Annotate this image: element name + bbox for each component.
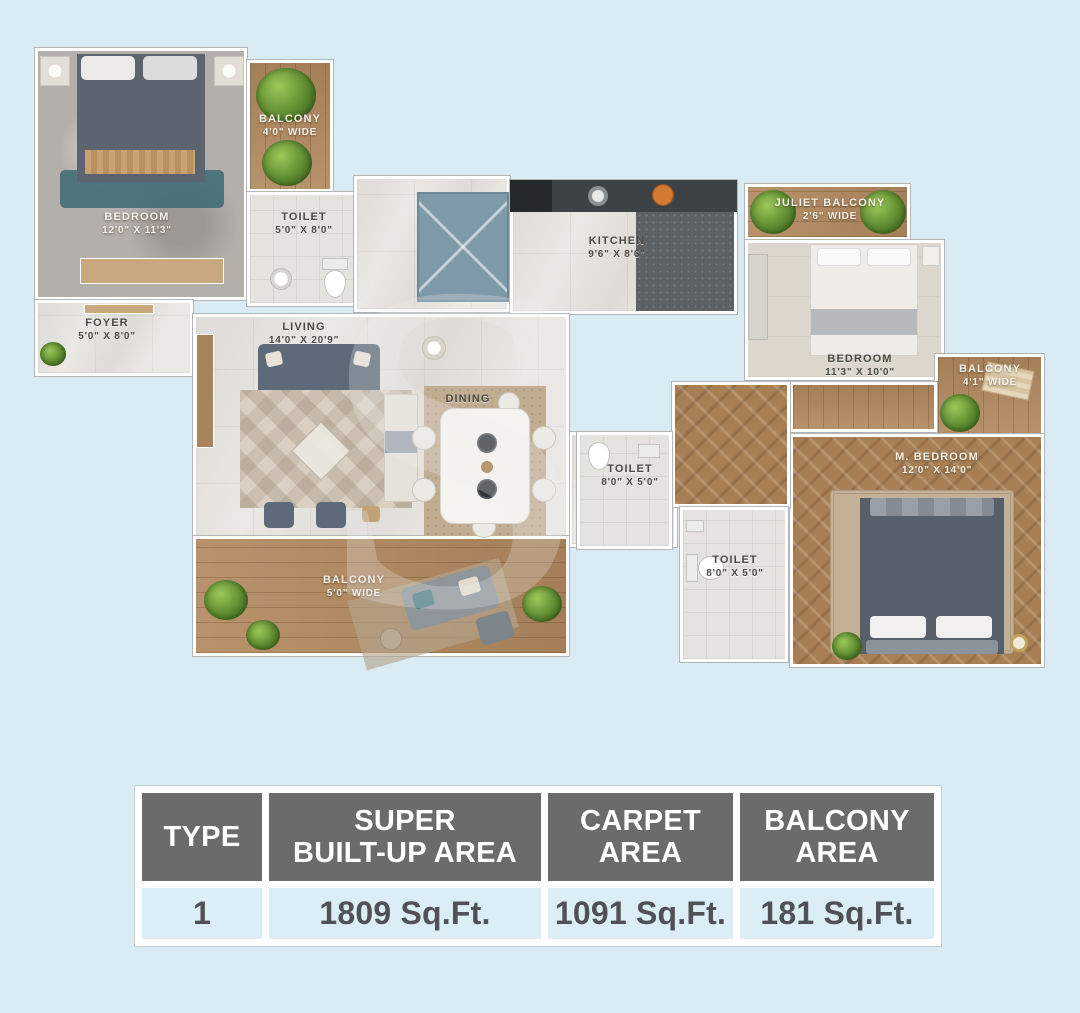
dining-table	[440, 408, 530, 524]
dining-chair	[412, 426, 436, 450]
refrigerator	[510, 180, 552, 212]
room-dims: 5'0" X 8'0"	[78, 331, 136, 344]
room-dims: 9'6" X 8'6"	[588, 249, 646, 262]
plant	[204, 580, 248, 620]
room-label-toilet-1: TOILET 5'0" X 8'0"	[275, 211, 333, 237]
room-dims: 12'0" X 14'0"	[895, 465, 979, 478]
room-name: BALCONY	[259, 113, 321, 127]
room-dims: 4'0" WIDE	[259, 127, 321, 140]
nightstand	[922, 246, 940, 266]
dining-chair	[532, 478, 556, 502]
room-dims: 5'0" WIDE	[323, 588, 385, 601]
plant	[832, 632, 862, 660]
plate	[477, 433, 497, 453]
plant	[40, 342, 66, 366]
table-cell-super-built-up-area: 1809 Sq.Ft.	[269, 888, 541, 939]
table-header-super-built-up-area: SUPER BUILT-UP AREA	[269, 793, 541, 881]
room-label-bedroom-2: BEDROOM 11'3" X 10'0"	[825, 353, 895, 379]
sofa-pillow	[265, 350, 284, 367]
room-label-dining: DINING	[445, 393, 490, 407]
room-name: JULIET BALCONY	[775, 197, 886, 211]
table-cell-balcony-area: 181 Sq.Ft.	[740, 888, 934, 939]
armchair	[316, 502, 346, 528]
sofa	[258, 344, 380, 396]
pillow	[870, 616, 926, 638]
room-label-kitchen: KITCHEN 9'6" X 8'6"	[588, 235, 646, 261]
stool	[362, 506, 380, 522]
floor-plan: BEDROOM 12'0" X 11'3" BALCONY 4'0" WIDE …	[32, 42, 1044, 674]
room-name: M. BEDROOM	[895, 451, 979, 465]
area-table: TYPE SUPER BUILT-UP AREA CARPET AREA BAL…	[135, 786, 941, 946]
room-name: TOILET	[601, 463, 659, 477]
pillow	[936, 616, 992, 638]
wash-basin	[686, 520, 704, 532]
room-label-living: LIVING 14'0" X 20'9"	[269, 321, 339, 347]
room-name: BALCONY	[323, 574, 385, 588]
wardrobe	[80, 258, 224, 284]
room-name: KITCHEN	[588, 235, 646, 249]
room-label-juliet-balcony: JULIET BALCONY 2'6" WIDE	[775, 197, 886, 223]
sofa-pillow	[412, 589, 436, 610]
room-dressing-ledge	[790, 382, 937, 432]
room-name: BALCONY	[959, 363, 1021, 377]
pillow	[817, 248, 861, 266]
nightstand-lamp	[40, 56, 70, 86]
room-passage-wood	[672, 382, 790, 507]
double-bed	[77, 54, 205, 182]
plant	[522, 586, 562, 622]
bed-throw	[811, 309, 917, 335]
room-dims: 4'1" WIDE	[959, 377, 1021, 390]
room-dims: 14'0" X 20'9"	[269, 335, 339, 348]
table-header-type: TYPE	[142, 793, 262, 881]
plate	[477, 479, 497, 499]
table-header-carpet-area: CARPET AREA	[548, 793, 733, 881]
room-name: FOYER	[78, 317, 136, 331]
tv-unit	[196, 334, 214, 448]
plant	[940, 394, 980, 432]
wash-basin	[270, 268, 292, 290]
room-name: TOILET	[706, 554, 764, 568]
console-table	[84, 304, 154, 314]
double-bed	[810, 244, 918, 356]
room-dims: 5'0" X 8'0"	[275, 225, 333, 238]
room-label-balcony-right: BALCONY 4'1" WIDE	[959, 363, 1021, 389]
cooktop	[652, 184, 674, 206]
table-cell-carpet-area: 1091 Sq.Ft.	[548, 888, 733, 939]
sofa-pillow	[353, 350, 372, 367]
room-label-foyer: FOYER 5'0" X 8'0"	[78, 317, 136, 343]
pillow	[143, 56, 197, 80]
room-label-bedroom-1: BEDROOM 12'0" X 11'3"	[102, 211, 172, 237]
table-cell-type: 1	[142, 888, 262, 939]
room-name: BEDROOM	[102, 211, 172, 225]
pillow	[867, 248, 911, 266]
kitchen-dark-floor	[636, 212, 734, 311]
table-header-balcony-area: BALCONY AREA	[740, 793, 934, 881]
nightstand-lamp	[214, 56, 244, 86]
bed-footboard	[85, 150, 195, 174]
room-name: DINING	[445, 393, 490, 407]
page: BEDROOM 12'0" X 11'3" BALCONY 4'0" WIDE …	[0, 0, 1080, 1013]
toilet-tank	[686, 554, 698, 582]
room-label-balcony-top: BALCONY 4'0" WIDE	[259, 113, 321, 139]
outdoor-table	[380, 628, 402, 650]
centerpiece	[481, 461, 493, 473]
sofa-pillow	[458, 576, 482, 597]
plant	[262, 140, 312, 186]
room-name: BEDROOM	[825, 353, 895, 367]
plant	[246, 620, 280, 650]
double-bed	[860, 498, 1004, 654]
room-label-balcony-bottom: BALCONY 5'0" WIDE	[323, 574, 385, 600]
dining-chair	[532, 426, 556, 450]
room-dims: 11'3" X 10'0"	[825, 367, 895, 380]
dining-chair	[412, 478, 436, 502]
room-dims: 2'6" WIDE	[775, 211, 886, 224]
bed-bench	[866, 640, 998, 654]
room-label-toilet-2: TOILET 8'0" X 5'0"	[601, 463, 659, 489]
toilet-tank	[322, 258, 348, 270]
kitchen-sink	[588, 186, 608, 206]
room-name: LIVING	[269, 321, 339, 335]
room-dims: 8'0" X 5'0"	[601, 477, 659, 490]
duct-shaft	[417, 192, 509, 302]
room-label-toilet-3: TOILET 8'0" X 5'0"	[706, 554, 764, 580]
room-name: TOILET	[275, 211, 333, 225]
pillow	[81, 56, 135, 80]
armchair	[264, 502, 294, 528]
wash-basin	[638, 444, 660, 458]
room-dims: 12'0" X 11'3"	[102, 225, 172, 238]
floor-lamp	[422, 336, 446, 360]
bed-headboard	[870, 498, 994, 516]
room-dims: 8'0" X 5'0"	[706, 568, 764, 581]
floor-mirror	[1010, 634, 1028, 652]
room-label-master-bedroom: M. BEDROOM 12'0" X 14'0"	[895, 451, 979, 477]
wardrobe	[748, 254, 768, 340]
